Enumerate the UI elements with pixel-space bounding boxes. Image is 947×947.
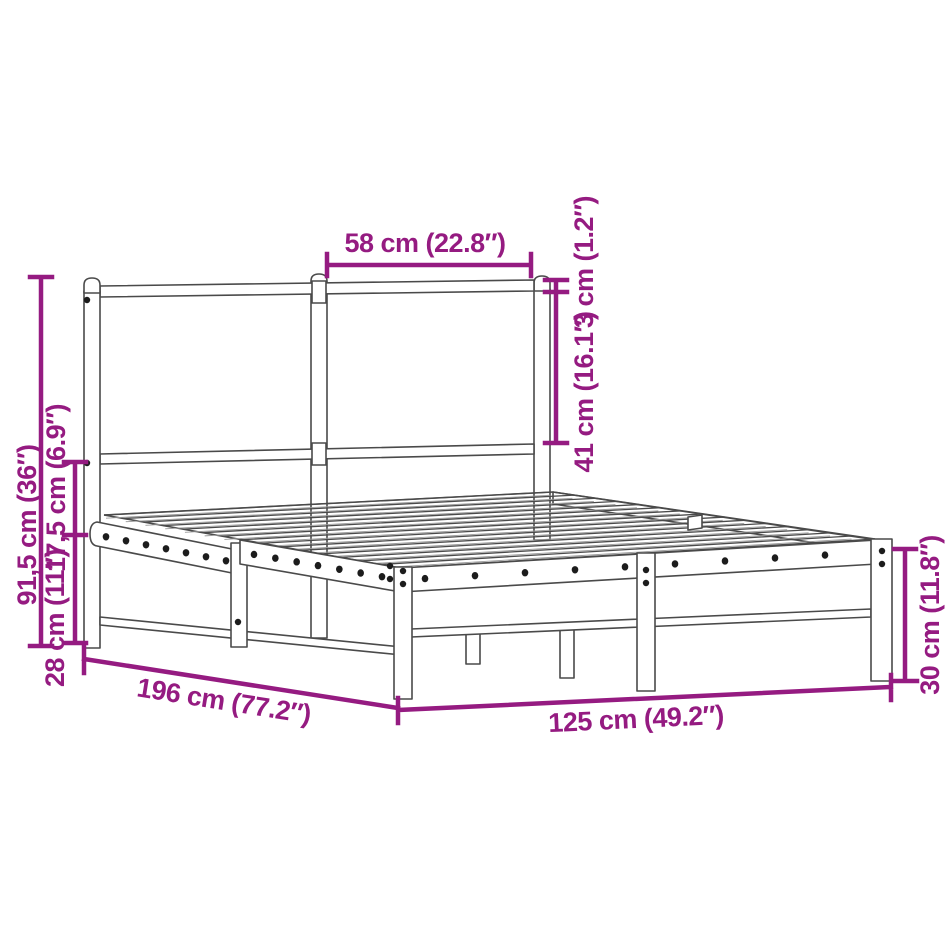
dimension-headboard-top-rail: 3 cm (1.2″) 41 cm (16.1″) <box>545 196 599 473</box>
dim-label-headboard-section-width: 58 cm (22.8″) <box>344 228 505 258</box>
slat-bracket <box>688 515 702 530</box>
dimension-frame-length: 196 cm (77.2″) <box>84 645 398 730</box>
foot-right-leg <box>871 539 892 681</box>
dim-label-headboard-top-rail: 3 cm (1.2″) <box>569 196 599 328</box>
headboard-clip-bottom <box>312 443 326 465</box>
dim-label-footboard-height: 30 cm (11.8″) <box>915 535 945 695</box>
headboard-left-post <box>84 291 100 648</box>
headboard-right-post <box>534 289 550 540</box>
product-dimension-diagram: 58 cm (22.8″) 3 cm (1.2″) 41 cm (16.1″) … <box>0 0 947 947</box>
under-frame <box>100 609 871 678</box>
headboard-left-post-cap <box>84 278 100 293</box>
dim-label-headboard-clearance: 17,5 cm (6.9″) <box>41 404 71 572</box>
dim-label-frame-width: 125 cm (49.2″) <box>548 700 725 738</box>
headboard-clip-top <box>312 281 326 303</box>
foot-middle-leg <box>637 553 655 691</box>
bed-frame-drawing: 58 cm (22.8″) 3 cm (1.2″) 41 cm (16.1″) … <box>0 0 947 947</box>
rear-leg-stub-2 <box>560 626 574 678</box>
dim-label-base-height: 28 cm (11″) <box>40 549 70 687</box>
dimension-footboard-height: 30 cm (11.8″) <box>893 535 945 695</box>
rails-and-legs <box>84 297 892 699</box>
dimension-headboard-clearance-and-base: 17,5 cm (6.9″) 28 cm (11″) <box>40 404 86 687</box>
dimension-headboard-section-width: 58 cm (22.8″) <box>327 228 531 276</box>
headboard <box>84 274 550 648</box>
dim-label-overall-height: 91,5 cm (36″) <box>12 444 42 605</box>
dim-label-headboard-panel-height: 41 cm (16.1″) <box>569 311 599 472</box>
left-stretcher <box>100 617 402 655</box>
